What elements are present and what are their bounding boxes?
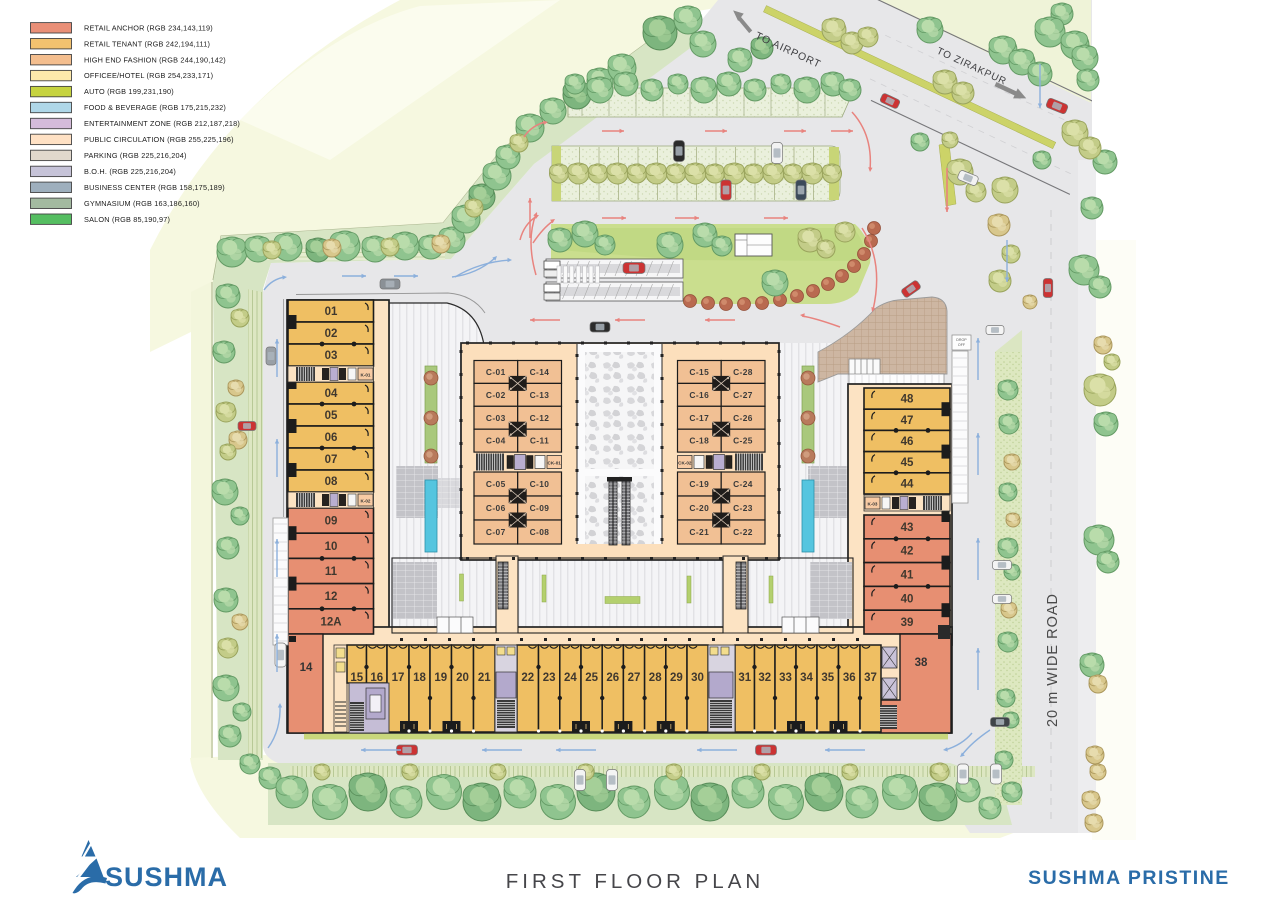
svg-text:04: 04 xyxy=(325,388,338,400)
svg-text:C-23: C-23 xyxy=(733,503,753,513)
svg-text:35: 35 xyxy=(821,672,834,684)
svg-text:C-15: C-15 xyxy=(689,367,709,377)
svg-text:GYMNASIUM (RGB 163,186,160): GYMNASIUM (RGB 163,186,160) xyxy=(84,199,200,208)
svg-text:FIRST FLOOR PLAN: FIRST FLOOR PLAN xyxy=(506,870,764,893)
svg-text:CK-02: CK-02 xyxy=(678,461,692,466)
svg-text:15: 15 xyxy=(350,672,363,684)
svg-text:18: 18 xyxy=(413,672,426,684)
svg-text:C-21: C-21 xyxy=(689,527,709,537)
svg-text:23: 23 xyxy=(543,672,556,684)
svg-text:29: 29 xyxy=(670,672,683,684)
svg-text:C-27: C-27 xyxy=(733,390,753,400)
svg-text:03: 03 xyxy=(325,350,338,362)
svg-text:32: 32 xyxy=(758,672,771,684)
svg-text:01: 01 xyxy=(325,306,338,318)
svg-text:C-25: C-25 xyxy=(733,436,753,446)
svg-text:19: 19 xyxy=(434,672,447,684)
svg-text:C-12: C-12 xyxy=(530,413,550,423)
svg-text:K-02: K-02 xyxy=(361,499,371,504)
svg-text:RETAIL TENANT (RGB 242,194,111: RETAIL TENANT (RGB 242,194,111) xyxy=(84,39,210,48)
svg-text:17: 17 xyxy=(392,672,405,684)
svg-text:34: 34 xyxy=(800,672,813,684)
svg-text:C-20: C-20 xyxy=(689,503,709,513)
svg-text:ENTERTAINMENT ZONE (RGB 212,18: ENTERTAINMENT ZONE (RGB 212,187,218) xyxy=(84,119,240,128)
svg-text:09: 09 xyxy=(325,516,338,528)
svg-text:30: 30 xyxy=(691,672,704,684)
svg-text:45: 45 xyxy=(901,457,914,469)
svg-text:14: 14 xyxy=(300,662,313,674)
svg-text:24: 24 xyxy=(564,672,577,684)
svg-text:C-13: C-13 xyxy=(530,390,550,400)
svg-text:C-01: C-01 xyxy=(486,367,506,377)
svg-text:25: 25 xyxy=(585,672,598,684)
svg-text:C-10: C-10 xyxy=(530,479,550,489)
svg-text:CK-01: CK-01 xyxy=(548,461,562,466)
svg-text:47: 47 xyxy=(901,415,914,427)
svg-text:38: 38 xyxy=(915,657,928,669)
svg-text:C-08: C-08 xyxy=(530,527,550,537)
svg-text:B.O.H. (RGB 225,216,204): B.O.H. (RGB 225,216,204) xyxy=(84,167,176,176)
svg-text:16: 16 xyxy=(370,672,383,684)
svg-text:C-04: C-04 xyxy=(486,436,506,446)
svg-text:20 m WIDE ROAD: 20 m WIDE ROAD xyxy=(1045,593,1061,727)
svg-text:C-02: C-02 xyxy=(486,390,506,400)
svg-text:K-03: K-03 xyxy=(868,502,878,507)
svg-text:05: 05 xyxy=(325,410,338,422)
svg-text:C-07: C-07 xyxy=(486,527,506,537)
svg-text:K-01: K-01 xyxy=(361,373,371,378)
svg-text:DROP: DROP xyxy=(956,338,967,342)
svg-text:C-14: C-14 xyxy=(530,367,550,377)
svg-text:21: 21 xyxy=(478,672,491,684)
svg-text:C-28: C-28 xyxy=(733,367,753,377)
svg-text:C-17: C-17 xyxy=(689,413,709,423)
svg-text:C-03: C-03 xyxy=(486,413,506,423)
svg-text:43: 43 xyxy=(901,522,914,534)
svg-text:28: 28 xyxy=(649,672,662,684)
svg-text:12: 12 xyxy=(325,591,338,603)
svg-text:FOOD & BEVERAGE (RGB 175,215,2: FOOD & BEVERAGE (RGB 175,215,232) xyxy=(84,103,226,112)
svg-text:37: 37 xyxy=(864,672,877,684)
svg-text:46: 46 xyxy=(901,436,914,448)
svg-text:11: 11 xyxy=(325,566,338,578)
svg-text:41: 41 xyxy=(901,570,914,582)
svg-text:PUBLIC CIRCULATION (RGB 255,22: PUBLIC CIRCULATION (RGB 255,225,196) xyxy=(84,135,234,144)
svg-text:OFF: OFF xyxy=(958,343,966,347)
svg-text:C-18: C-18 xyxy=(689,436,709,446)
svg-text:SALON (RGB 85,190,97): SALON (RGB 85,190,97) xyxy=(84,215,170,224)
svg-text:C-26: C-26 xyxy=(733,413,753,423)
svg-text:C-19: C-19 xyxy=(689,479,709,489)
svg-text:C-16: C-16 xyxy=(689,390,709,400)
svg-text:06: 06 xyxy=(325,432,338,444)
svg-text:44: 44 xyxy=(901,478,914,490)
svg-text:SUSHMA PRISTINE: SUSHMA PRISTINE xyxy=(1028,867,1230,889)
svg-text:22: 22 xyxy=(521,672,534,684)
svg-text:39: 39 xyxy=(901,617,914,629)
svg-text:OFFICEE/HOTEL (RGB 254,233,171: OFFICEE/HOTEL (RGB 254,233,171) xyxy=(84,71,213,80)
svg-text:BUSINESS CENTER (RGB 158,175,1: BUSINESS CENTER (RGB 158,175,189) xyxy=(84,183,225,192)
svg-text:10: 10 xyxy=(325,541,338,553)
svg-text:27: 27 xyxy=(628,672,641,684)
svg-text:36: 36 xyxy=(843,672,856,684)
svg-text:PARKING (RGB 225,216,204): PARKING (RGB 225,216,204) xyxy=(84,151,187,160)
svg-text:SUSHMA: SUSHMA xyxy=(105,862,228,892)
svg-text:07: 07 xyxy=(325,454,338,466)
svg-text:48: 48 xyxy=(901,394,914,406)
svg-text:31: 31 xyxy=(738,672,751,684)
svg-text:33: 33 xyxy=(779,672,792,684)
svg-text:40: 40 xyxy=(901,593,914,605)
svg-text:02: 02 xyxy=(325,328,338,340)
svg-text:C-09: C-09 xyxy=(530,503,550,513)
svg-text:C-11: C-11 xyxy=(530,436,549,446)
svg-text:26: 26 xyxy=(606,672,619,684)
svg-text:42: 42 xyxy=(901,546,914,558)
svg-text:AUTO (RGB 199,231,190): AUTO (RGB 199,231,190) xyxy=(84,87,174,96)
svg-text:C-24: C-24 xyxy=(733,479,753,489)
svg-text:08: 08 xyxy=(325,476,338,488)
svg-text:20: 20 xyxy=(456,672,469,684)
svg-text:HIGH END FASHION (RGB 244,190,: HIGH END FASHION (RGB 244,190,142) xyxy=(84,55,226,64)
svg-text:C-06: C-06 xyxy=(486,503,506,513)
svg-text:C-05: C-05 xyxy=(486,479,506,489)
svg-text:RETAIL ANCHOR (RGB 234,143,119: RETAIL ANCHOR (RGB 234,143,119) xyxy=(84,23,213,32)
svg-text:C-22: C-22 xyxy=(733,527,753,537)
svg-text:12A: 12A xyxy=(320,616,341,628)
